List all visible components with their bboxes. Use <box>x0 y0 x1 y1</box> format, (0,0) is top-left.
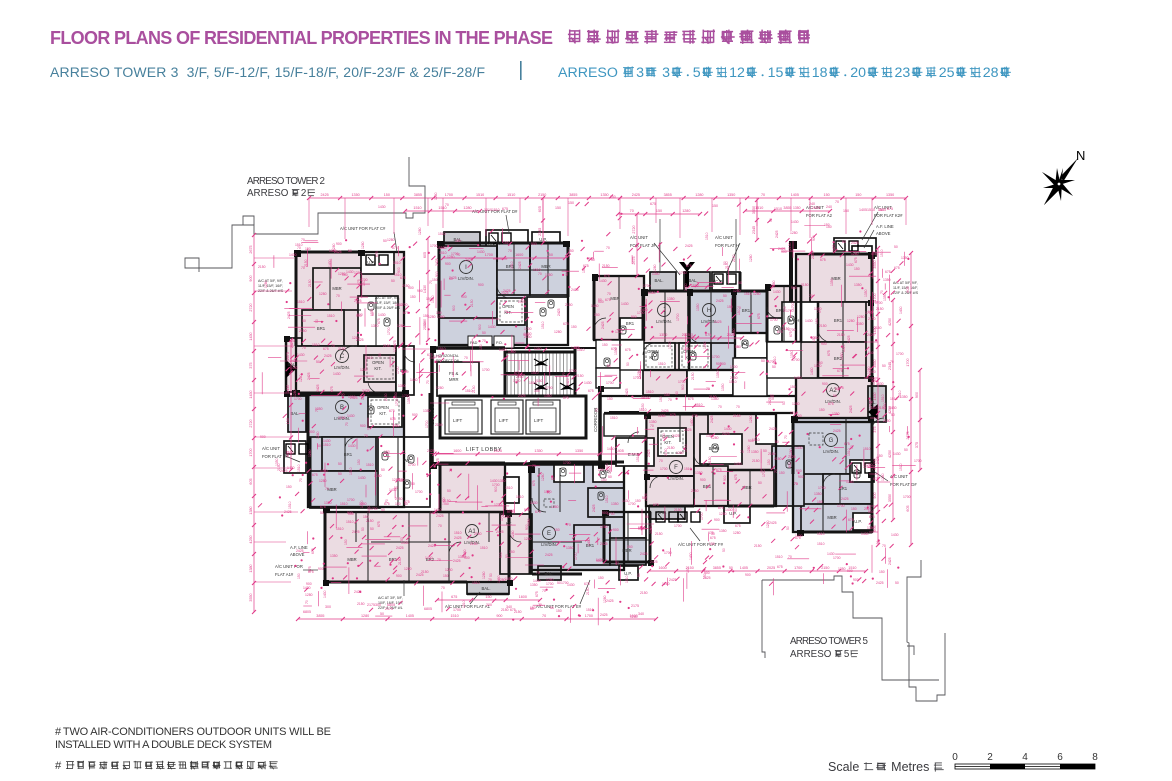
svg-text:605: 605 <box>249 478 253 484</box>
svg-text:1280: 1280 <box>418 227 422 235</box>
svg-text:1405: 1405 <box>740 566 748 570</box>
svg-text:1430: 1430 <box>773 290 781 294</box>
svg-text:675: 675 <box>789 331 793 337</box>
svg-text:1700: 1700 <box>768 360 776 364</box>
svg-text:1280: 1280 <box>436 386 444 390</box>
svg-text:2150: 2150 <box>423 322 427 330</box>
svg-text:1700: 1700 <box>430 244 438 248</box>
svg-text:1350: 1350 <box>867 526 875 530</box>
svg-text:70: 70 <box>438 524 442 528</box>
svg-text:1510: 1510 <box>533 268 541 272</box>
svg-text:1280: 1280 <box>299 374 303 382</box>
svg-text:2150: 2150 <box>357 602 365 606</box>
svg-text:675: 675 <box>838 386 844 390</box>
svg-text:1430: 1430 <box>805 319 813 323</box>
svg-text:1510: 1510 <box>890 397 898 401</box>
svg-text:2425: 2425 <box>851 241 859 245</box>
svg-text:1510: 1510 <box>450 614 458 618</box>
svg-text:240: 240 <box>826 205 832 209</box>
svg-text:A/C UNIT FOR FLAT F#: A/C UNIT FOR FLAT F# <box>678 542 724 547</box>
svg-text:1510: 1510 <box>899 463 903 471</box>
svg-text:ABOVE: ABOVE <box>876 231 891 236</box>
svg-text:1700: 1700 <box>574 552 578 560</box>
svg-text:1430: 1430 <box>286 451 294 455</box>
svg-text:150: 150 <box>547 253 553 257</box>
svg-text:70: 70 <box>761 193 765 197</box>
svg-text:70: 70 <box>872 467 876 471</box>
svg-text:OPEN: OPEN <box>372 360 384 365</box>
svg-text:70: 70 <box>794 482 798 486</box>
svg-text:2425: 2425 <box>545 553 553 557</box>
svg-text:50: 50 <box>734 508 738 512</box>
svg-text:1510: 1510 <box>881 394 885 402</box>
svg-text:2425: 2425 <box>284 510 292 514</box>
svg-text:900: 900 <box>716 362 722 366</box>
svg-text:900: 900 <box>745 573 751 577</box>
svg-text:KIT.: KIT. <box>379 411 386 416</box>
svg-text:PROJECTION: PROJECTION <box>436 359 460 363</box>
svg-text:1350: 1350 <box>814 492 822 496</box>
svg-text:1430: 1430 <box>346 270 354 274</box>
svg-text:1700: 1700 <box>485 253 493 257</box>
svg-text:A/C P.: A/C P. <box>711 279 723 284</box>
svg-text:1510: 1510 <box>454 531 462 535</box>
svg-text:70: 70 <box>876 541 880 545</box>
svg-text:675: 675 <box>670 413 676 417</box>
svg-text:150: 150 <box>879 570 885 574</box>
svg-text:1510: 1510 <box>577 348 585 352</box>
svg-text:70: 70 <box>650 424 654 428</box>
svg-text:2425: 2425 <box>320 193 328 197</box>
svg-text:1700: 1700 <box>360 278 368 282</box>
svg-text:675: 675 <box>650 202 656 206</box>
svg-text:605: 605 <box>538 206 542 212</box>
svg-text:50: 50 <box>302 319 306 323</box>
svg-text:50: 50 <box>338 462 342 466</box>
svg-text:MBR: MBR <box>332 286 341 291</box>
svg-text:2425: 2425 <box>778 247 786 251</box>
svg-text:675: 675 <box>887 207 893 211</box>
svg-text:900: 900 <box>649 525 653 531</box>
svg-text:FOR FLAT K2#: FOR FLAT K2# <box>874 213 903 218</box>
svg-text:2150: 2150 <box>868 317 876 321</box>
svg-text:BR1: BR1 <box>834 318 843 323</box>
svg-text:1430: 1430 <box>810 367 814 375</box>
svg-text:1350: 1350 <box>351 193 359 197</box>
svg-text:FLOOR PLANS OF RESIDENTIAL PRO: FLOOR PLANS OF RESIDENTIAL PROPERTIES IN… <box>50 28 553 48</box>
svg-text:1510: 1510 <box>842 344 846 352</box>
svg-text:2425: 2425 <box>672 434 680 438</box>
svg-text:1430: 1430 <box>347 414 355 418</box>
svg-text:150: 150 <box>344 539 348 545</box>
svg-text:50: 50 <box>775 440 779 444</box>
svg-text:FLAT A1#: FLAT A1# <box>275 572 294 577</box>
svg-text:1700: 1700 <box>914 459 922 463</box>
svg-text:900: 900 <box>798 475 804 479</box>
svg-text:675: 675 <box>708 531 714 535</box>
svg-text:MBR: MBR <box>541 264 550 269</box>
svg-text:150: 150 <box>555 206 561 210</box>
svg-text:4: 4 <box>1022 752 1028 763</box>
svg-text:2150: 2150 <box>752 459 760 463</box>
svg-text:1700: 1700 <box>628 502 636 506</box>
svg-text:MBR: MBR <box>610 296 619 301</box>
svg-text:2150: 2150 <box>586 587 590 595</box>
svg-text:23: 23 <box>895 65 911 81</box>
svg-text:675: 675 <box>377 521 381 527</box>
svg-text:50: 50 <box>383 239 387 243</box>
svg-text:1280: 1280 <box>703 341 707 349</box>
svg-text:150: 150 <box>727 305 733 309</box>
svg-text:2175: 2175 <box>367 603 375 607</box>
svg-text:BAL.: BAL. <box>544 571 553 576</box>
svg-text:1350: 1350 <box>900 395 908 399</box>
svg-text:2425: 2425 <box>661 409 669 413</box>
svg-text:1430: 1430 <box>621 302 629 306</box>
svg-text:1280: 1280 <box>428 315 436 319</box>
svg-text:1350: 1350 <box>683 347 691 351</box>
svg-text:50: 50 <box>370 527 374 531</box>
svg-text:1350: 1350 <box>732 328 736 336</box>
svg-text:1510: 1510 <box>297 464 301 472</box>
svg-text:50: 50 <box>317 444 321 448</box>
svg-text:150: 150 <box>443 574 449 578</box>
svg-text:675: 675 <box>532 480 536 486</box>
svg-text:6805: 6805 <box>424 607 432 611</box>
svg-text:1510: 1510 <box>438 347 446 351</box>
svg-text:1700: 1700 <box>347 498 355 502</box>
svg-text:1700: 1700 <box>770 318 778 322</box>
svg-text:6: 6 <box>1057 752 1063 763</box>
svg-text:1700: 1700 <box>906 358 910 366</box>
svg-text:2150: 2150 <box>308 279 312 287</box>
svg-text:70: 70 <box>536 571 540 575</box>
svg-text:150: 150 <box>598 468 604 472</box>
svg-text:1510: 1510 <box>817 532 825 536</box>
svg-text:675: 675 <box>392 246 398 250</box>
svg-text:675: 675 <box>716 468 722 472</box>
svg-text:1430: 1430 <box>533 579 541 583</box>
svg-text:2675: 2675 <box>249 245 253 253</box>
svg-text:1280: 1280 <box>354 271 362 275</box>
svg-text:675: 675 <box>451 595 457 599</box>
svg-text:ARRESO: ARRESO <box>790 649 834 660</box>
svg-text:2425: 2425 <box>684 428 692 432</box>
svg-text:1280: 1280 <box>867 366 871 374</box>
svg-text:150: 150 <box>851 507 857 511</box>
svg-text:1350: 1350 <box>534 449 542 453</box>
svg-text:70: 70 <box>325 487 329 491</box>
svg-text:150: 150 <box>878 208 884 212</box>
svg-text:1700: 1700 <box>396 366 400 374</box>
svg-text:1280: 1280 <box>847 319 855 323</box>
svg-text:675: 675 <box>718 506 724 510</box>
svg-text:2425: 2425 <box>287 311 291 319</box>
svg-text:900: 900 <box>408 286 414 290</box>
svg-text:50: 50 <box>761 359 765 363</box>
svg-text:A/C P.: A/C P. <box>488 241 500 246</box>
svg-text:1510: 1510 <box>625 575 629 583</box>
svg-text:50: 50 <box>550 606 554 610</box>
svg-text:2425: 2425 <box>427 449 435 453</box>
svg-text:150: 150 <box>779 471 785 475</box>
svg-text:2425: 2425 <box>296 549 304 553</box>
svg-text:675: 675 <box>563 322 569 326</box>
svg-text:2150: 2150 <box>691 489 699 493</box>
svg-text:1510: 1510 <box>871 379 879 383</box>
svg-text:1700: 1700 <box>400 303 408 307</box>
svg-text:1510: 1510 <box>439 251 447 255</box>
svg-text:1280: 1280 <box>789 448 793 456</box>
svg-text:1430: 1430 <box>323 590 327 598</box>
svg-text:1430: 1430 <box>524 332 532 336</box>
svg-text:675: 675 <box>400 276 406 280</box>
svg-text:150: 150 <box>871 406 877 410</box>
svg-text:900: 900 <box>435 271 439 277</box>
svg-text:1430: 1430 <box>410 378 418 382</box>
svg-text:900: 900 <box>700 478 706 482</box>
svg-text:E: E <box>547 531 551 537</box>
svg-text:# TWO AIR-CONDITIONERS OUTDOOR: # TWO AIR-CONDITIONERS OUTDOOR UNITS WIL… <box>55 726 331 738</box>
svg-text:BAL.: BAL. <box>688 278 697 283</box>
svg-text:1280: 1280 <box>319 292 327 296</box>
svg-text:1350: 1350 <box>854 283 862 287</box>
svg-text:6805: 6805 <box>303 610 311 614</box>
svg-text:900: 900 <box>714 518 720 522</box>
svg-text:1700: 1700 <box>875 301 883 305</box>
svg-text:1700: 1700 <box>387 327 391 335</box>
svg-text:1280: 1280 <box>293 389 297 397</box>
svg-text:1430: 1430 <box>795 534 803 538</box>
svg-text:1700: 1700 <box>395 398 399 406</box>
svg-text:2425: 2425 <box>650 560 658 564</box>
svg-text:150: 150 <box>598 576 604 580</box>
svg-text:1700: 1700 <box>684 444 688 452</box>
svg-text:2425: 2425 <box>888 557 892 565</box>
svg-text:2425: 2425 <box>769 521 777 525</box>
svg-text:150: 150 <box>790 385 796 389</box>
svg-text:1280: 1280 <box>319 479 327 483</box>
svg-text:1350: 1350 <box>883 293 887 301</box>
svg-text:1280: 1280 <box>447 255 455 259</box>
svg-text:2425: 2425 <box>566 378 570 386</box>
svg-text:2425: 2425 <box>307 372 311 380</box>
svg-text:2150: 2150 <box>733 414 741 418</box>
svg-text:2150: 2150 <box>667 446 675 450</box>
svg-text:1405: 1405 <box>616 449 624 453</box>
svg-text:1280: 1280 <box>264 280 268 288</box>
svg-text:BAL.: BAL. <box>481 586 490 591</box>
svg-text:1510: 1510 <box>636 454 640 462</box>
svg-text:50: 50 <box>447 489 451 493</box>
svg-text:70: 70 <box>890 360 894 364</box>
svg-text:1700: 1700 <box>678 380 686 384</box>
svg-text:70: 70 <box>504 310 508 314</box>
svg-text:675: 675 <box>588 389 594 393</box>
svg-text:1430: 1430 <box>303 586 311 590</box>
svg-text:1350: 1350 <box>883 402 887 410</box>
svg-text:70: 70 <box>736 405 740 409</box>
svg-text:1510: 1510 <box>336 527 344 531</box>
svg-text:1510: 1510 <box>438 232 446 236</box>
svg-text:300: 300 <box>375 603 381 607</box>
svg-text:2425: 2425 <box>435 258 439 266</box>
svg-text:2425: 2425 <box>356 338 364 342</box>
svg-text:1350: 1350 <box>320 469 328 473</box>
svg-text:1280: 1280 <box>524 537 532 541</box>
svg-text:2425: 2425 <box>350 396 358 400</box>
svg-text:675: 675 <box>375 251 379 257</box>
svg-text:1510: 1510 <box>340 502 348 506</box>
svg-text:900: 900 <box>249 275 253 281</box>
svg-text:675: 675 <box>604 274 610 278</box>
svg-text:150: 150 <box>554 528 560 532</box>
svg-text:1510: 1510 <box>867 208 875 212</box>
svg-text:1280: 1280 <box>682 209 690 213</box>
svg-text:300: 300 <box>486 603 492 607</box>
svg-text:2425: 2425 <box>833 429 841 433</box>
svg-text:4250: 4250 <box>888 318 892 326</box>
svg-text:ARRESO: ARRESO <box>247 188 291 199</box>
svg-text:4250: 4250 <box>249 535 253 543</box>
svg-text:675: 675 <box>837 369 843 373</box>
svg-text:70: 70 <box>784 435 788 439</box>
svg-text:50: 50 <box>404 502 408 506</box>
svg-text:50: 50 <box>607 364 611 368</box>
svg-text:50: 50 <box>608 475 612 479</box>
svg-text:1350: 1350 <box>566 546 574 550</box>
svg-text:1510: 1510 <box>658 362 666 366</box>
svg-text:2150: 2150 <box>655 532 663 536</box>
svg-text:1700: 1700 <box>507 509 515 513</box>
svg-text:2425: 2425 <box>625 388 629 396</box>
svg-text:1350: 1350 <box>856 322 864 326</box>
svg-text:1700: 1700 <box>546 582 554 586</box>
svg-text:675: 675 <box>427 353 433 357</box>
svg-text:MBR: MBR <box>827 515 836 520</box>
svg-text:FOR FLAT H: FOR FLAT H <box>715 243 739 248</box>
svg-text:2425: 2425 <box>465 258 473 262</box>
svg-text:900: 900 <box>396 574 402 578</box>
svg-text:2425: 2425 <box>518 300 526 304</box>
svg-text:70: 70 <box>464 356 468 360</box>
svg-text:1350: 1350 <box>437 315 445 319</box>
svg-text:150: 150 <box>817 500 823 504</box>
svg-text:150: 150 <box>384 193 390 197</box>
svg-text:BATH: BATH <box>709 446 720 451</box>
svg-text:50: 50 <box>411 482 415 486</box>
svg-text:70: 70 <box>426 380 430 384</box>
svg-text:LIFT: LIFT <box>499 418 509 423</box>
svg-text:2425: 2425 <box>324 354 332 358</box>
svg-text:2425: 2425 <box>518 394 526 398</box>
svg-text:50: 50 <box>833 394 837 398</box>
svg-text:1510: 1510 <box>437 246 445 250</box>
svg-text:ARRESO TOWER 5: ARRESO TOWER 5 <box>790 636 869 647</box>
svg-text:150: 150 <box>824 223 830 227</box>
svg-text:2: 2 <box>987 752 993 763</box>
svg-text:50: 50 <box>371 312 375 316</box>
svg-text:2175: 2175 <box>385 607 393 611</box>
svg-text:1510: 1510 <box>297 300 305 304</box>
svg-text:1280: 1280 <box>541 473 545 481</box>
svg-text:1380: 1380 <box>249 564 253 572</box>
svg-text:150: 150 <box>855 193 861 197</box>
svg-text:50: 50 <box>316 360 320 364</box>
svg-text:A/C UNIT FOR: A/C UNIT FOR <box>275 564 303 569</box>
svg-text:1350: 1350 <box>727 193 735 197</box>
svg-text:1510: 1510 <box>366 463 374 467</box>
svg-text:2150: 2150 <box>383 344 391 348</box>
svg-text:1700: 1700 <box>607 512 615 516</box>
svg-text:1510: 1510 <box>312 343 320 347</box>
svg-text:1700: 1700 <box>415 490 423 494</box>
svg-text:KIT.: KIT. <box>664 440 671 445</box>
svg-text:50: 50 <box>320 511 324 515</box>
svg-text:900: 900 <box>915 392 919 398</box>
svg-text:1700: 1700 <box>674 524 682 528</box>
svg-text:50: 50 <box>882 364 886 368</box>
svg-text:900: 900 <box>445 262 451 266</box>
svg-text:BATH: BATH <box>789 318 800 323</box>
svg-text:1700: 1700 <box>679 271 687 275</box>
svg-text:150: 150 <box>610 195 616 199</box>
svg-text:50: 50 <box>869 400 873 404</box>
svg-text:50: 50 <box>763 449 767 453</box>
svg-text:1280: 1280 <box>630 615 638 619</box>
svg-text:1510: 1510 <box>484 208 492 212</box>
svg-text:1600: 1600 <box>658 566 666 570</box>
svg-text:1510: 1510 <box>847 448 851 456</box>
svg-text:1430: 1430 <box>794 376 802 380</box>
svg-text:150: 150 <box>868 310 874 314</box>
svg-text:1350: 1350 <box>545 273 553 277</box>
svg-text:2025: 2025 <box>494 449 502 453</box>
svg-text:900: 900 <box>496 614 502 618</box>
svg-text:900: 900 <box>662 433 666 439</box>
svg-text:BR1: BR1 <box>317 326 326 331</box>
svg-text:2150: 2150 <box>501 608 509 612</box>
svg-text:KIT.: KIT. <box>374 366 381 371</box>
svg-text:900: 900 <box>598 300 604 304</box>
svg-text:ARRESO TOWER 3 3/F, 5/F-12/F,: ARRESO TOWER 3 3/F, 5/F-12/F, 15/F-18/F,… <box>50 64 485 80</box>
svg-text:50: 50 <box>381 468 385 472</box>
svg-text:1430: 1430 <box>328 259 332 267</box>
svg-text:150: 150 <box>286 485 292 489</box>
svg-text:1700: 1700 <box>606 381 614 385</box>
svg-text:1430: 1430 <box>899 306 903 314</box>
svg-text:1700: 1700 <box>700 512 704 520</box>
svg-text:900: 900 <box>347 511 353 515</box>
svg-text:150: 150 <box>582 267 586 273</box>
svg-text:70: 70 <box>445 203 449 207</box>
svg-text:2345: 2345 <box>752 226 756 234</box>
svg-text:1280: 1280 <box>498 578 506 582</box>
svg-text:150: 150 <box>594 313 600 317</box>
svg-text:2425: 2425 <box>769 427 777 431</box>
svg-text:2425: 2425 <box>449 276 457 280</box>
svg-text:675: 675 <box>686 264 692 268</box>
svg-text:2425: 2425 <box>864 507 872 511</box>
svg-text:FAD: FAD <box>470 341 478 345</box>
svg-text:50: 50 <box>758 481 762 485</box>
svg-text:675: 675 <box>308 570 314 574</box>
svg-text:70: 70 <box>291 339 295 343</box>
svg-text:70: 70 <box>345 422 349 426</box>
svg-text:2425: 2425 <box>644 493 648 501</box>
svg-text:1510: 1510 <box>516 495 524 499</box>
svg-text:5: 5 <box>693 65 701 81</box>
